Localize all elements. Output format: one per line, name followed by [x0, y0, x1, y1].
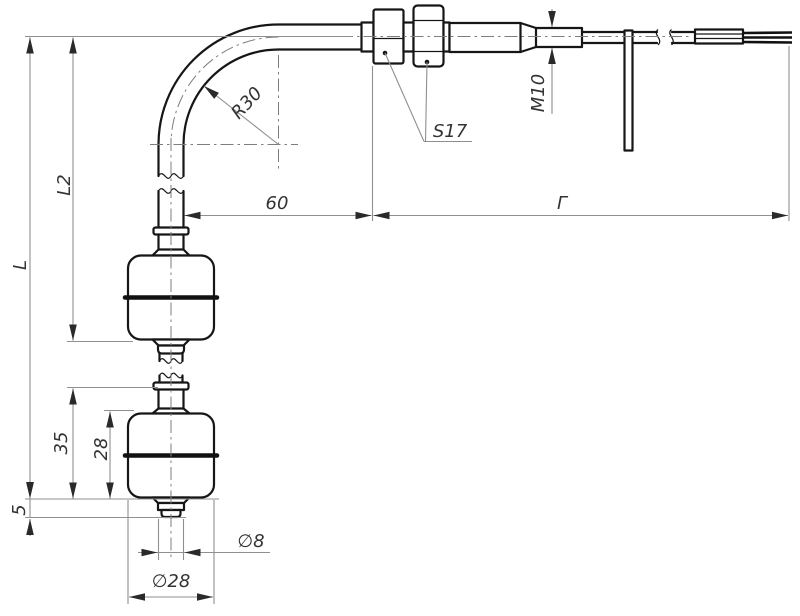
- dim-label-60: 60: [266, 193, 289, 214]
- dimension-labels: L L2 35 28 5 R30 60 Г S17 M10 ∅8 ∅28: [9, 74, 569, 592]
- dim-label-float-diameter: ∅28: [152, 571, 191, 592]
- dim-label-m10: M10: [528, 74, 549, 112]
- dim-label-r30: R30: [227, 83, 267, 123]
- technical-drawing-float-level-sensor: L L2 35 28 5 R30 60 Г S17 M10 ∅8 ∅28: [0, 0, 800, 616]
- cable-break: [656, 30, 673, 46]
- thread-section-m10: [536, 28, 582, 47]
- fitting-body: [450, 23, 521, 52]
- dim-label-tube-diameter: ∅8: [237, 531, 264, 552]
- drawing-canvas: L L2 35 28 5 R30 60 Г S17 M10 ∅8 ∅28: [0, 0, 800, 616]
- cable-end-sleeve: [695, 30, 743, 44]
- dim-label-cable-length: Г: [557, 193, 569, 214]
- sensor-body: [125, 6, 792, 518]
- center-line-bend-arc: [171, 37, 279, 145]
- dim-label-total-length: L: [10, 260, 31, 270]
- centerlines: [150, 37, 690, 559]
- dim-label-35: 35: [51, 432, 72, 455]
- fitting-taper: [521, 23, 537, 52]
- dim-label-s17: S17: [433, 121, 468, 142]
- dim-label-28: 28: [91, 438, 112, 461]
- cable: [582, 32, 695, 43]
- wire-leads: [743, 33, 792, 43]
- bend-tube-outer: [159, 25, 279, 145]
- probe-rod: [625, 31, 633, 151]
- dim-label-5: 5: [9, 504, 30, 515]
- dim-label-l2: L2: [54, 174, 75, 195]
